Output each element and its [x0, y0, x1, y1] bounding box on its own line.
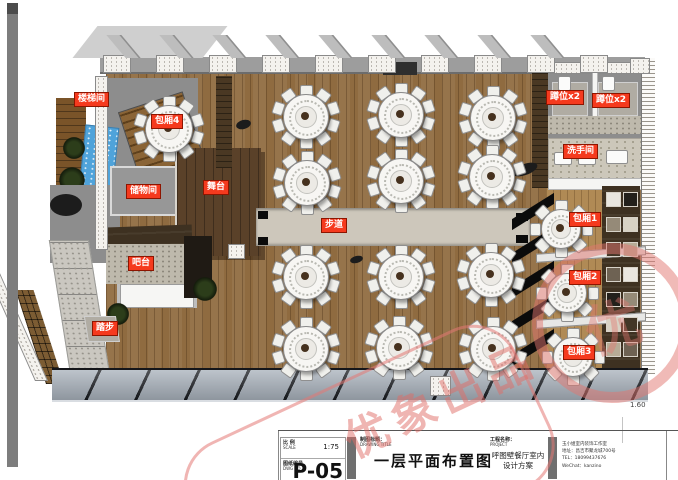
dining-table: [269, 80, 341, 152]
roof-slab: [72, 26, 227, 58]
room-label: 包厢3: [563, 345, 595, 360]
studio-wechat: WeChat：kanzino: [562, 463, 664, 470]
centerpiece: [488, 344, 496, 352]
drawing-title-label: 制图标题： DRAWING TITLE: [360, 437, 392, 447]
project-label: 工程名称： PROJECT: [490, 437, 515, 447]
dining-table: [456, 312, 528, 384]
drawing-title-block: 制图标题： DRAWING TITLE 一层平面布置图: [360, 437, 486, 479]
stage-column: [228, 244, 245, 259]
dining-table: [454, 238, 526, 310]
title-block-bar: [347, 437, 356, 479]
dwgno-row: 图纸编号 DWG NO P-05: [281, 459, 345, 479]
centerpiece: [396, 176, 404, 184]
wall-art-frame: [623, 342, 638, 357]
chair: [530, 223, 541, 236]
centerpiece: [487, 172, 495, 180]
toilet: [558, 76, 571, 91]
black-round-table: [50, 194, 82, 216]
scale-value: 1:75: [323, 443, 339, 451]
left-margin-bar: [7, 3, 18, 467]
dining-table: [455, 140, 527, 212]
room-label: 蹲位x2: [592, 93, 630, 108]
dining-table: [269, 240, 341, 312]
wall-art-frame: [623, 242, 638, 257]
centerpiece: [301, 272, 309, 280]
plan-scale-note: 1.60: [630, 401, 646, 409]
scale-label: 比 例 SCALE: [283, 440, 296, 450]
dining-table: [270, 146, 342, 218]
centerpiece: [301, 344, 309, 352]
dining-table: [364, 78, 436, 150]
dining-table: [269, 312, 341, 384]
runway-seat: [258, 211, 268, 219]
project-label-en: PROJECT: [490, 443, 515, 447]
project-block: 工程名称： PROJECT 呼图壁餐厅室内 设计方案: [490, 437, 546, 479]
dwgno-value: P-05: [293, 459, 343, 480]
wall-art-frame: [606, 317, 621, 332]
room-label: 储物间: [126, 184, 161, 199]
wall-art-frame: [623, 192, 638, 207]
centerpiece: [394, 343, 402, 351]
wall-art-frame: [623, 292, 638, 307]
room-label: 包厢2: [569, 270, 601, 285]
centerpiece: [556, 224, 564, 232]
title-block-bar: [548, 437, 557, 479]
chair: [588, 287, 599, 300]
scale-label-en: SCALE: [283, 446, 296, 450]
floor-plan: 楼梯间包厢4储物间舞台步道吧台踏步蹲位x2蹲位x2洗手间包厢1包厢2包厢3: [0, 0, 678, 480]
wall-pier: [630, 58, 650, 74]
room-label: 吧台: [128, 256, 154, 271]
title-block-right-line: [666, 431, 667, 480]
wall-art-frame: [623, 267, 638, 282]
centerpiece: [301, 112, 309, 120]
room-label: 蹲位x2: [546, 90, 584, 105]
mosaic-band: [548, 116, 642, 134]
dining-table: [527, 195, 593, 261]
chair: [555, 247, 568, 258]
studio-info-block: 玉小姐室内装饰工作室 地址：昌吉市聚龙城700号 TEL：18099437676…: [562, 441, 664, 470]
centerpiece: [562, 288, 570, 296]
studio-tel: TEL：18099437676: [562, 455, 664, 462]
centerpiece: [396, 272, 404, 280]
drawing-title: 一层平面布置图: [374, 450, 493, 471]
dining-table: [362, 311, 434, 383]
plant: [192, 276, 218, 302]
left-margin-bar-cap: [7, 3, 18, 14]
scale-dwgno-block: 比 例 SCALE 1:75 图纸编号 DWG NO P-05: [280, 437, 346, 480]
runway-seat: [258, 237, 268, 245]
drawing-sheet: 楼梯间包厢4储物间舞台步道吧台踏步蹲位x2蹲位x2洗手间包厢1包厢2包厢3 1.…: [0, 0, 678, 480]
wall-art-frame: [623, 217, 638, 232]
wall-art-frame: [623, 317, 638, 332]
wall-art-frame: [606, 342, 621, 357]
studio-address: 地址：昌吉市聚龙城700号: [562, 448, 664, 455]
room-label: 包厢4: [151, 114, 183, 129]
chair: [542, 351, 553, 364]
title-block: 比 例 SCALE 1:75 图纸编号 DWG NO P-05 制图标题： DR…: [278, 430, 678, 480]
centerpiece: [396, 110, 404, 118]
chair: [561, 311, 574, 322]
room-label: 步道: [321, 218, 347, 233]
wall-art-frame: [606, 292, 621, 307]
room-label: 包厢1: [569, 212, 601, 227]
studio-name: 玉小姐室内装饰工作室: [562, 441, 664, 448]
project-name-line1: 呼图壁餐厅室内: [490, 451, 546, 461]
room4-side-wall: [216, 76, 232, 168]
centerpiece: [488, 113, 496, 121]
reception-desk: [120, 284, 194, 308]
toilet: [602, 76, 615, 91]
dining-table: [364, 240, 436, 312]
chair: [536, 287, 547, 300]
scale-row: 比 例 SCALE 1:75: [281, 438, 345, 459]
wall-art-frame: [606, 242, 621, 257]
centerpiece: [486, 270, 494, 278]
room-label: 踏步: [92, 321, 118, 336]
chair: [567, 375, 580, 386]
basin: [606, 150, 628, 164]
dining-table: [364, 144, 436, 216]
drawing-title-label-en: DRAWING TITLE: [360, 443, 392, 447]
room-label: 舞台: [203, 180, 229, 195]
wall-art-frame: [606, 217, 621, 232]
dining-table: [533, 259, 599, 325]
wall-pier: [580, 55, 608, 73]
title-block-left-line: [278, 431, 279, 480]
centerpiece: [302, 178, 310, 186]
project-name: 呼图壁餐厅室内 设计方案: [490, 451, 546, 471]
room-label: 洗手间: [563, 144, 598, 159]
wall-art-frame: [606, 192, 621, 207]
room-label: 楼梯间: [74, 92, 109, 107]
outer-wall-right: [641, 58, 655, 374]
wall-art-frame: [606, 267, 621, 282]
plant: [62, 136, 86, 160]
project-name-line2: 设计方案: [490, 461, 546, 471]
